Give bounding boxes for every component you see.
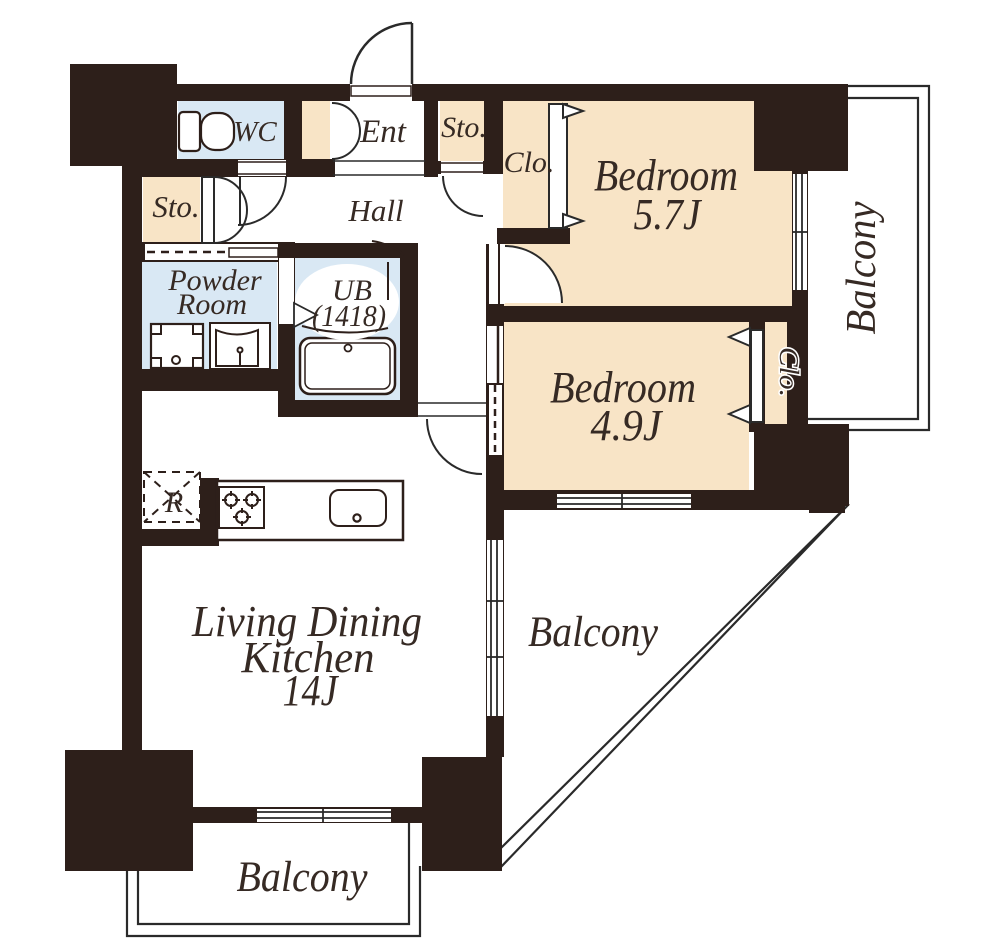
svg-text:WC: WC [233, 116, 277, 148]
svg-text:4.9J: 4.9J [591, 401, 664, 450]
svg-text:Hall: Hall [347, 193, 403, 228]
svg-text:Clo.: Clo. [774, 347, 804, 397]
svg-text:Balcony: Balcony [528, 609, 659, 656]
svg-text:R: R [164, 486, 183, 519]
svg-text:(1418): (1418) [312, 298, 386, 333]
svg-text:5.7J: 5.7J [634, 190, 703, 239]
svg-text:14J: 14J [283, 666, 340, 715]
svg-text:Room: Room [176, 288, 247, 321]
svg-text:Balcony: Balcony [839, 201, 885, 334]
svg-text:Clo.: Clo. [504, 146, 555, 179]
svg-text:Sto.: Sto. [441, 111, 487, 144]
svg-text:Sto.: Sto. [152, 189, 199, 224]
svg-text:Ent: Ent [359, 114, 407, 150]
svg-text:Balcony: Balcony [237, 854, 369, 901]
